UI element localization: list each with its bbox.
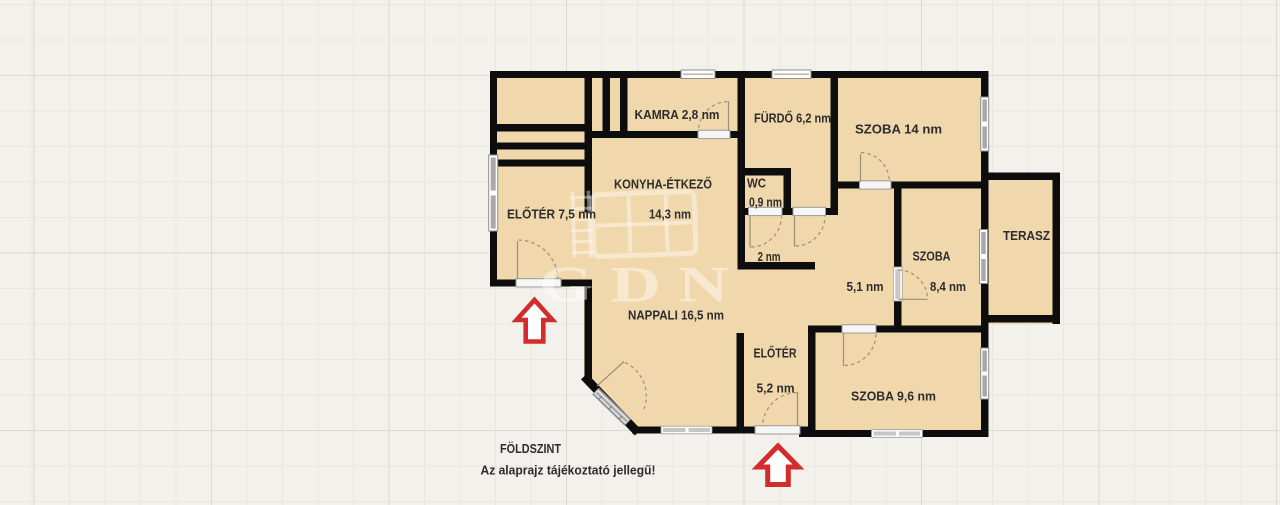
svg-text:KONYHA-ÉTKEZŐ: KONYHA-ÉTKEZŐ <box>614 177 712 192</box>
svg-text:ELŐTÉR: ELŐTÉR <box>754 346 797 361</box>
svg-text:0,9 nm: 0,9 nm <box>749 195 782 210</box>
svg-text:5,2 nm: 5,2 nm <box>757 381 795 396</box>
svg-text:14,3 nm: 14,3 nm <box>649 207 691 222</box>
svg-text:KAMRA 2,8 nm: KAMRA 2,8 nm <box>635 107 720 122</box>
svg-text:8,4 nm: 8,4 nm <box>930 279 966 294</box>
svg-text:Az alaprajz tájékoztató jelleg: Az alaprajz tájékoztató jellegű! <box>481 463 656 478</box>
svg-text:ELŐTÉR 7,5 nm: ELŐTÉR 7,5 nm <box>507 207 596 222</box>
svg-text:SZOBA 9,6 nm: SZOBA 9,6 nm <box>851 389 936 404</box>
svg-text:2 nm: 2 nm <box>758 249 781 264</box>
svg-text:5,1 nm: 5,1 nm <box>847 279 884 294</box>
svg-text:SZOBA: SZOBA <box>913 249 952 264</box>
svg-text:FÜRDŐ 6,2 nm: FÜRDŐ 6,2 nm <box>754 111 831 126</box>
svg-text:FÖLDSZINT: FÖLDSZINT <box>500 441 561 456</box>
svg-text:TERASZ: TERASZ <box>1003 228 1050 243</box>
svg-text:NAPPALI 16,5 nm: NAPPALI 16,5 nm <box>628 308 724 323</box>
svg-text:WC: WC <box>747 176 767 191</box>
svg-text:GDN: GDN <box>539 256 746 313</box>
svg-text:SZOBA 14 nm: SZOBA 14 nm <box>855 122 942 137</box>
